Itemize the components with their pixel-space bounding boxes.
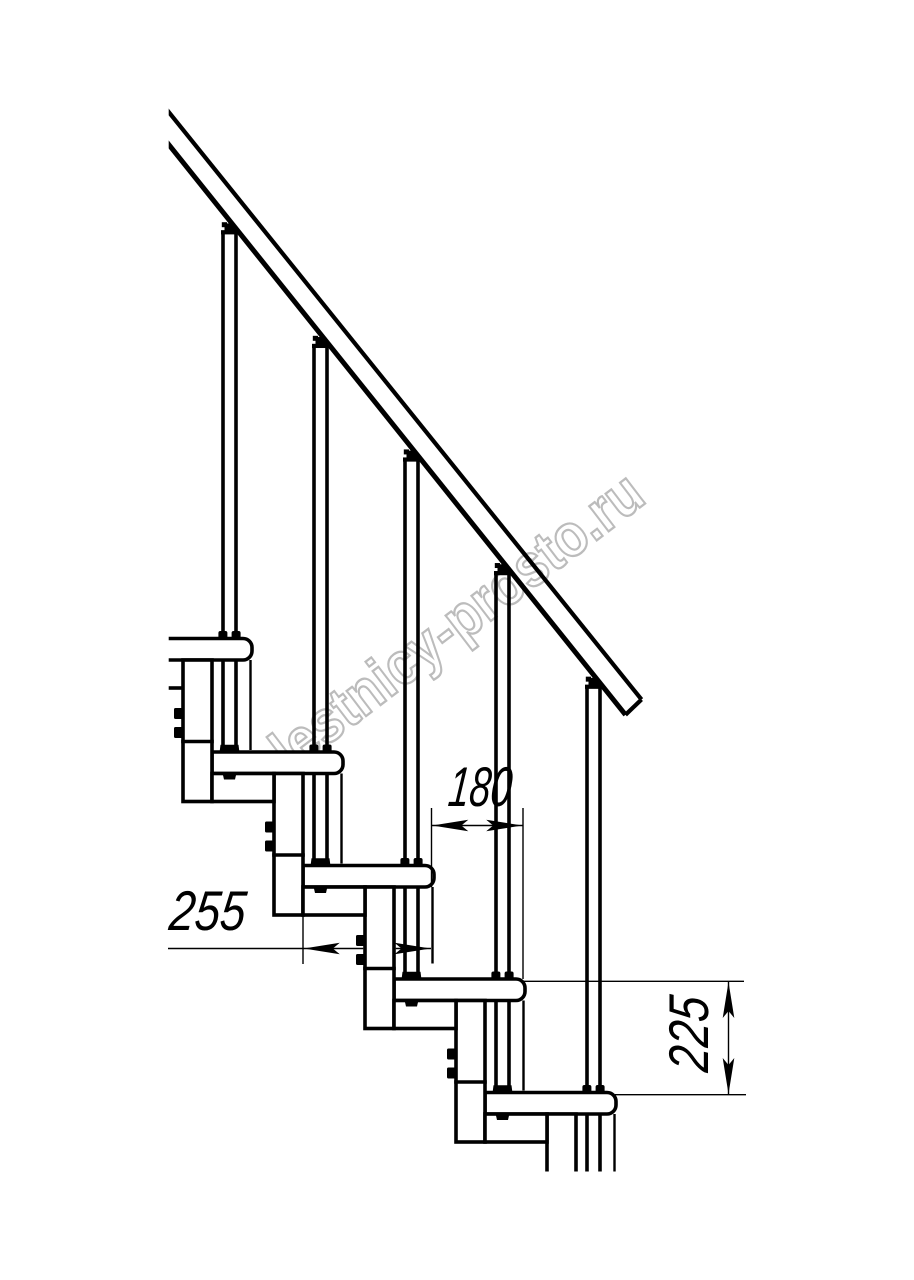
svg-text:255: 255 xyxy=(166,879,250,942)
svg-text:180: 180 xyxy=(446,755,516,818)
svg-text:225: 225 xyxy=(657,992,720,1075)
